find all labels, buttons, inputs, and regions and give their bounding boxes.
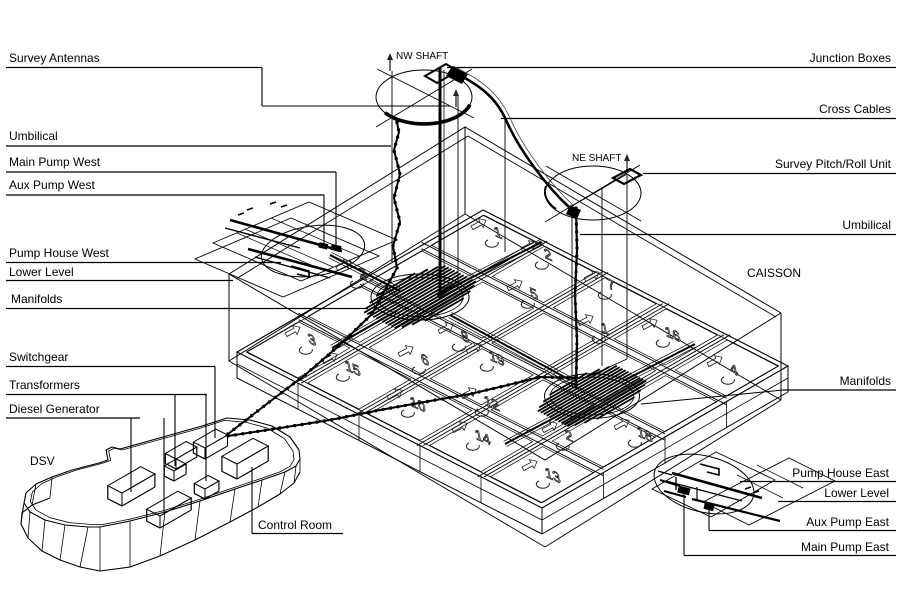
svg-text:Cross Cables: Cross Cables xyxy=(819,102,891,116)
svg-text:Lower Level: Lower Level xyxy=(9,265,74,279)
svg-text:Lower Level: Lower Level xyxy=(824,486,889,500)
svg-text:Pump House East: Pump House East xyxy=(792,466,889,480)
svg-text:Survey Pitch/Roll Unit: Survey Pitch/Roll Unit xyxy=(775,157,892,171)
svg-text:Pump House West: Pump House West xyxy=(9,246,109,260)
svg-text:Junction Boxes: Junction Boxes xyxy=(810,51,891,65)
svg-text:Manifolds: Manifolds xyxy=(840,374,891,388)
svg-text:Umbilical: Umbilical xyxy=(842,218,891,232)
svg-text:Transformers: Transformers xyxy=(9,378,80,392)
svg-text:Switchgear: Switchgear xyxy=(9,350,68,364)
svg-text:Survey Antennas: Survey Antennas xyxy=(9,51,100,65)
svg-text:DSV: DSV xyxy=(30,454,55,468)
svg-text:NE SHAFT: NE SHAFT xyxy=(572,153,621,164)
svg-text:Main Pump East: Main Pump East xyxy=(801,540,890,554)
svg-text:Umbilical: Umbilical xyxy=(9,129,58,143)
svg-text:Main Pump West: Main Pump West xyxy=(9,155,101,169)
svg-text:Aux Pump East: Aux Pump East xyxy=(806,515,889,529)
svg-text:CAISSON: CAISSON xyxy=(747,266,801,280)
svg-text:Manifolds: Manifolds xyxy=(11,292,62,306)
svg-text:Diesel Generator: Diesel Generator xyxy=(9,402,100,416)
svg-text:NW SHAFT: NW SHAFT xyxy=(396,51,448,62)
svg-text:Control Room: Control Room xyxy=(258,518,332,532)
svg-text:Aux Pump West: Aux Pump West xyxy=(9,178,95,192)
